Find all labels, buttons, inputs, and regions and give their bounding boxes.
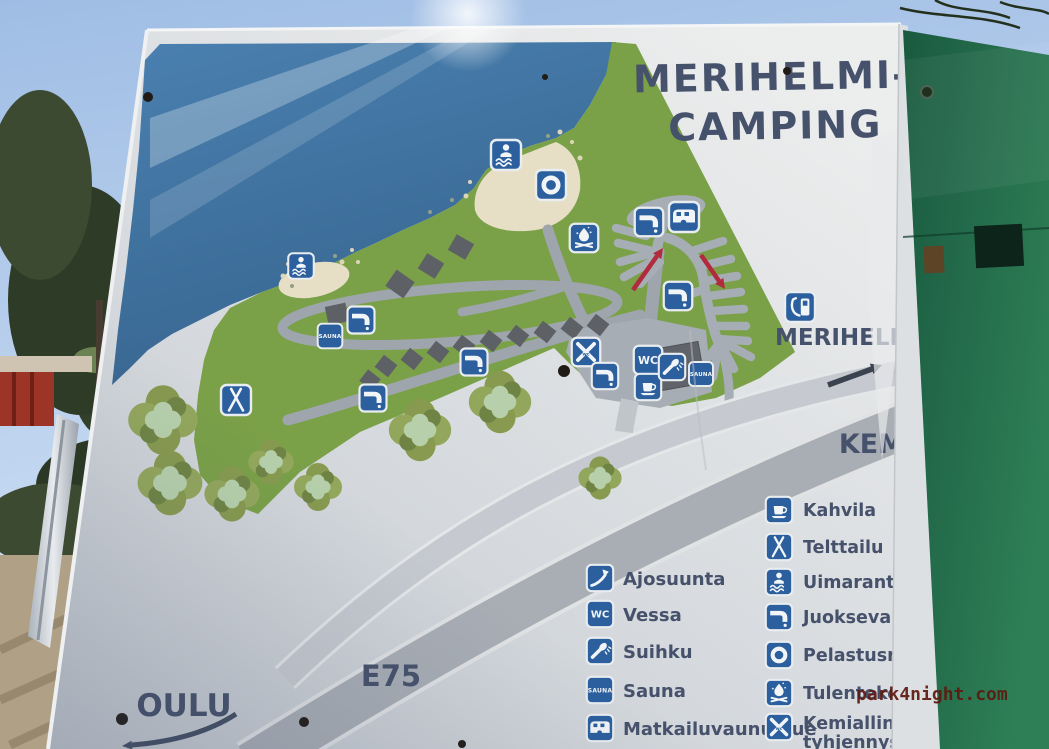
wall-dark-patch — [974, 224, 1024, 268]
wall-brown-patch — [924, 246, 945, 274]
wall-screw — [921, 86, 933, 98]
watermark: park4night.com — [856, 684, 1008, 705]
sign-shading — [48, 24, 901, 749]
photo-of-camping-map-sign: WC SAUNA wc — [0, 0, 1049, 749]
